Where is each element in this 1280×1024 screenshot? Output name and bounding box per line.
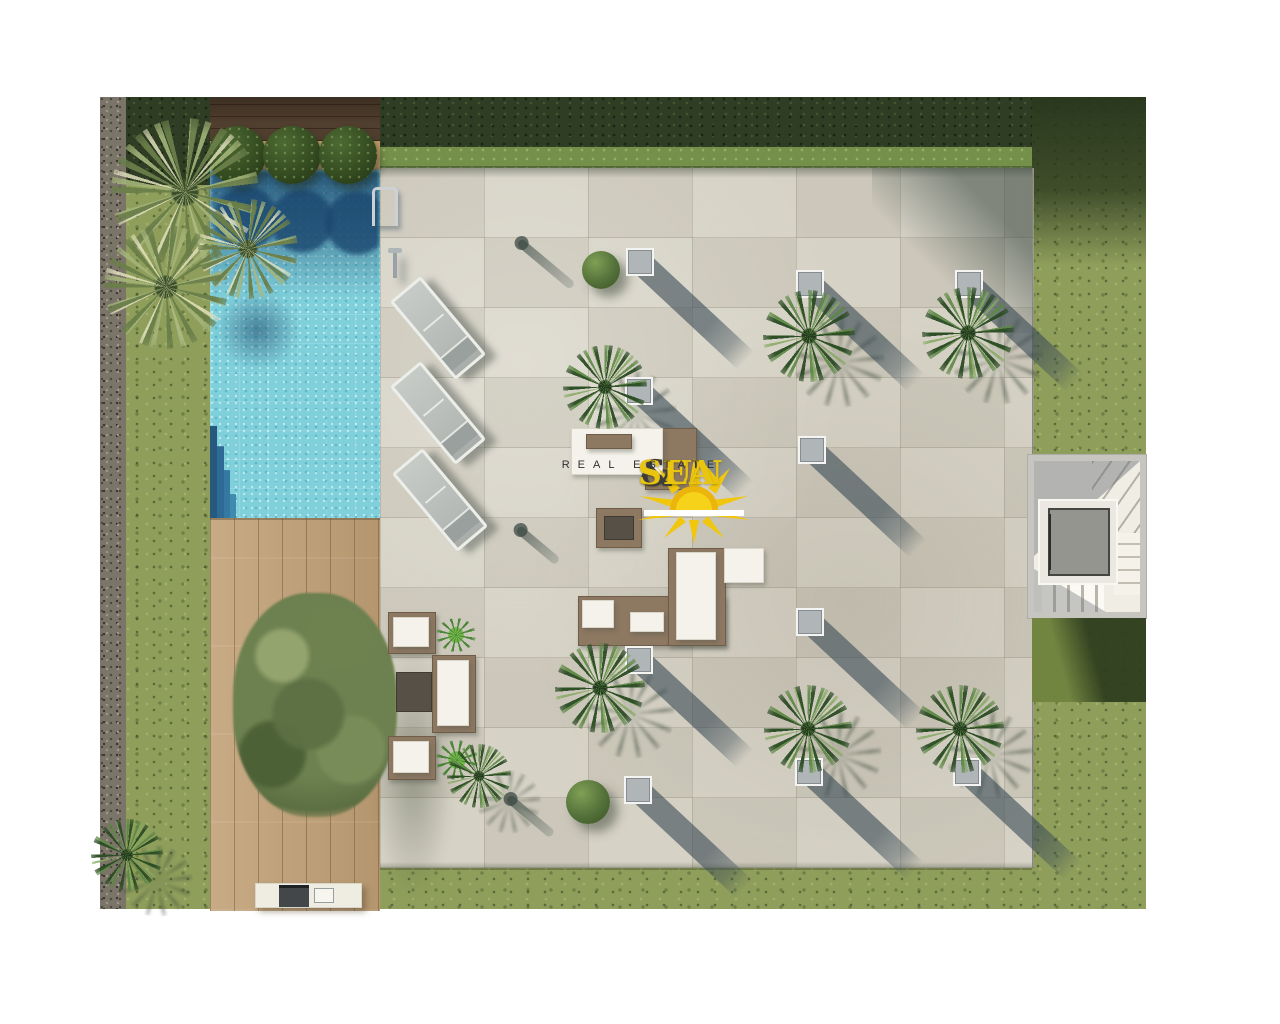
hedge-shadow-top-right: [1032, 97, 1146, 265]
skylight-window: [626, 248, 654, 276]
palm-tree: [91, 819, 163, 891]
shrub: [582, 251, 620, 289]
hedge-lit-strip: [380, 147, 1032, 168]
watermark-logo: SUN & SEA REAL ESTATE: [528, 435, 748, 595]
kitchen-sink: [314, 888, 334, 903]
pool-steps: [210, 426, 236, 518]
palm-tree: [198, 199, 298, 299]
potted-plant: [436, 618, 476, 652]
sofa-pillow: [630, 612, 664, 632]
palm-tree: [916, 685, 1004, 773]
bbq-grill: [279, 885, 309, 907]
armchair-cushion: [393, 617, 429, 647]
outdoor-kitchen-counter: [255, 883, 362, 908]
coffee-table: [396, 672, 432, 712]
palm-tree: [764, 685, 852, 773]
palm-tree: [763, 290, 855, 382]
palm-tree: [563, 345, 647, 429]
site-plan-render: SUN & SEA REAL ESTATE: [0, 0, 1280, 1024]
garden-sofa-cushion: [437, 660, 469, 726]
plan: SUN & SEA REAL ESTATE: [100, 97, 1146, 909]
hedge-below-staircase: [1032, 618, 1146, 702]
armchair-cushion: [393, 741, 429, 773]
elevator-door: [1049, 514, 1051, 570]
shrub: [566, 780, 610, 824]
pool-palm-shadow: [215, 290, 300, 370]
outdoor-shower: [393, 252, 397, 278]
elevator-cab: [1048, 508, 1110, 576]
skylight-window: [798, 436, 826, 464]
skylight-window: [796, 608, 824, 636]
palm-tree: [922, 287, 1014, 379]
staircase-block: [1028, 455, 1146, 618]
staircase-interior: [1034, 461, 1140, 612]
palm-tree: [555, 643, 645, 733]
elevator-frame: [1038, 499, 1118, 585]
sofa-pillow: [582, 600, 614, 628]
palm-tree: [447, 744, 511, 808]
pool-ladder: [372, 187, 398, 226]
topiary-bush: [263, 126, 321, 184]
skylight-window: [624, 776, 652, 804]
brand-tagline: REAL ESTATE: [528, 459, 748, 471]
olive-tree: [233, 593, 397, 817]
topiary-bush: [319, 126, 377, 184]
